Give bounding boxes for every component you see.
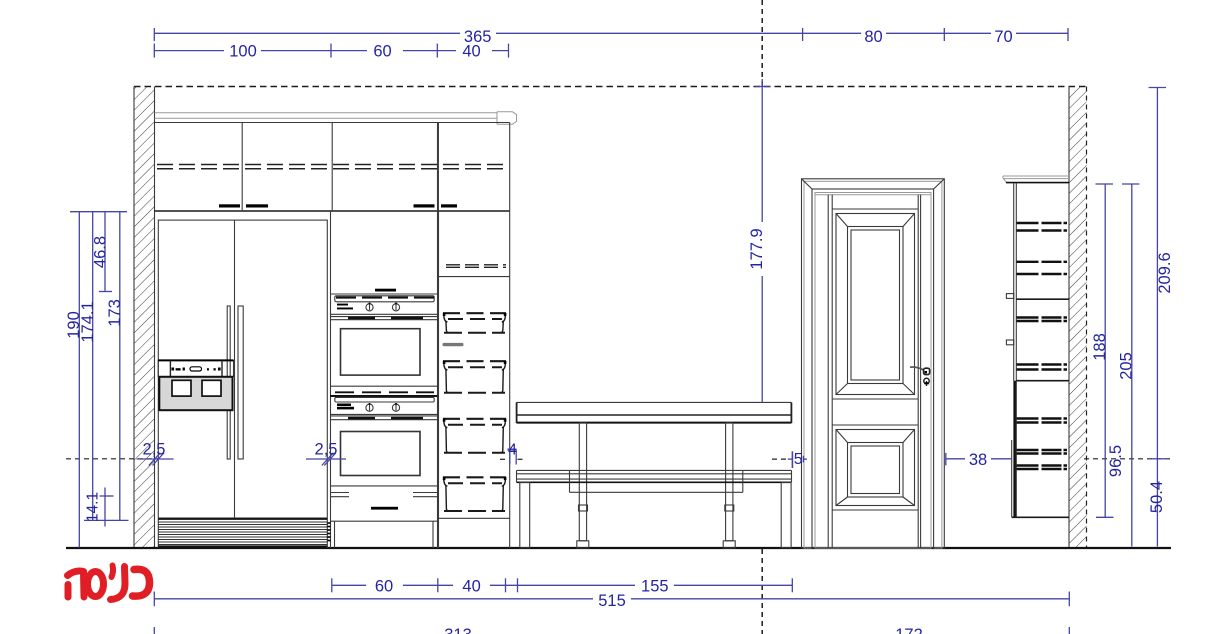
- svg-text:96.5: 96.5: [1107, 445, 1125, 477]
- svg-text:4: 4: [508, 442, 517, 459]
- svg-text:313: 313: [444, 626, 472, 634]
- svg-text:515: 515: [598, 592, 626, 610]
- svg-text:2,5: 2,5: [143, 441, 166, 459]
- svg-text:60: 60: [373, 42, 391, 60]
- svg-text:38: 38: [969, 451, 987, 469]
- svg-text:174.1: 174.1: [79, 301, 97, 342]
- svg-text:60: 60: [375, 578, 393, 596]
- svg-text:40: 40: [462, 42, 480, 60]
- svg-text:70: 70: [994, 28, 1012, 46]
- svg-text:80: 80: [864, 28, 882, 46]
- svg-text:2,5: 2,5: [315, 441, 338, 459]
- svg-text:40: 40: [462, 578, 480, 596]
- svg-text:50.4: 50.4: [1148, 481, 1166, 513]
- svg-text:46.8: 46.8: [92, 236, 110, 268]
- svg-text:100: 100: [229, 42, 257, 60]
- svg-text:155: 155: [641, 578, 669, 596]
- svg-text:172: 172: [895, 626, 923, 634]
- svg-text:5: 5: [794, 451, 803, 468]
- svg-text:14.1: 14.1: [85, 492, 102, 522]
- svg-text:188: 188: [1091, 333, 1109, 361]
- svg-text:177.9: 177.9: [748, 228, 766, 269]
- svg-text:173: 173: [106, 299, 124, 327]
- svg-text:209.6: 209.6: [1156, 252, 1174, 293]
- svg-text:205: 205: [1118, 352, 1136, 380]
